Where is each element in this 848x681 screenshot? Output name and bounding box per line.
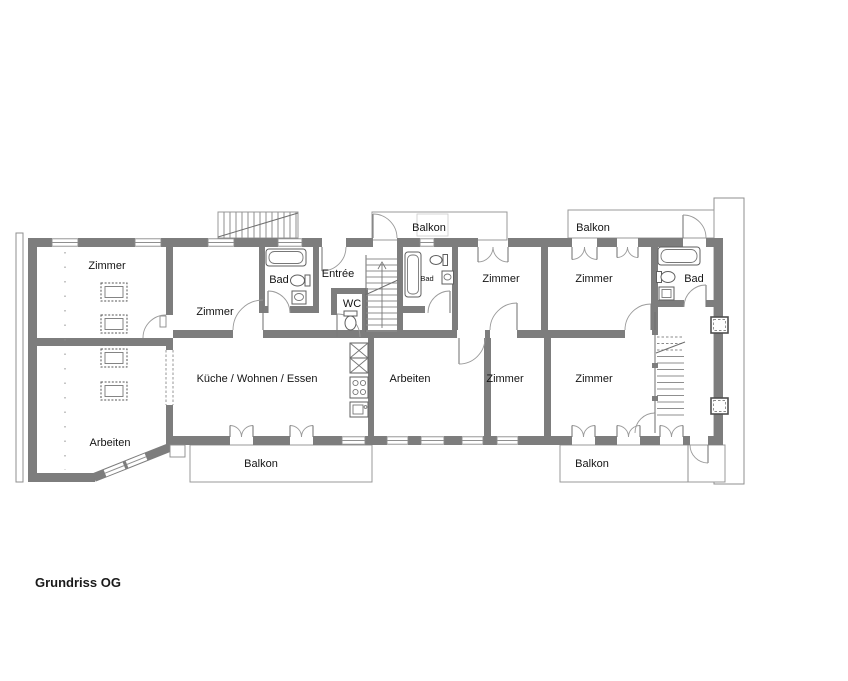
exterior-stair [218, 212, 298, 238]
toilet-icon [657, 272, 676, 283]
room-label-bad-e: Bad [684, 273, 704, 285]
bathtub-icon [266, 249, 306, 266]
room-label-bad-w: Bad [269, 274, 289, 286]
room-label-arbeiten-m: Arbeiten [390, 373, 431, 385]
room-label-zimmer-n2: Zimmer [575, 273, 613, 285]
sink-icon [350, 402, 368, 417]
plan-title: Grundriss OG [35, 575, 121, 590]
sink-icon [292, 291, 306, 304]
kitchen-cabinet-icon [350, 343, 368, 373]
balcony-label-bottom-right: Balkon [575, 458, 609, 470]
room-label-zimmer-nw: Zimmer [88, 260, 126, 272]
room-label-zimmer-w: Zimmer [196, 306, 234, 318]
bed-icon [101, 315, 127, 333]
toilet-icon [344, 311, 357, 330]
bed-icon [101, 382, 127, 400]
floor-plan-page: Zimmer Zimmer Bad Entrée WC Bad Zimmer Z… [0, 0, 848, 681]
room-label-arbeiten-sw: Arbeiten [90, 437, 131, 449]
doors [143, 214, 708, 463]
sink-icon [659, 287, 674, 300]
room-label-zimmer-s1: Zimmer [486, 373, 524, 385]
balcony-label-top-left: Balkon [412, 222, 446, 234]
room-label-entree: Entrée [322, 268, 354, 280]
bed-icon [101, 349, 127, 367]
balcony-bottom-left-outline [190, 445, 372, 482]
bathtub-icon [658, 247, 700, 265]
balcony-label-bottom-left: Balkon [244, 458, 278, 470]
toilet-icon [291, 275, 311, 286]
main-staircase [365, 255, 398, 332]
balcony-label-top-right: Balkon [576, 222, 610, 234]
floor-plan-drawing: Zimmer Zimmer Bad Entrée WC Bad Zimmer Z… [0, 0, 848, 681]
room-label-wc: WC [343, 298, 361, 310]
room-label-kueche: Küche / Wohnen / Essen [197, 373, 318, 385]
chimney-icon [711, 317, 728, 333]
room-label-zimmer-n1: Zimmer [482, 273, 520, 285]
chimney-icon [711, 398, 728, 414]
bed-icon [101, 283, 127, 301]
sink-icon [442, 271, 454, 284]
stove-icon [350, 377, 368, 398]
toilet-icon [430, 255, 448, 266]
bathtub-icon [405, 252, 421, 297]
room-label-bad-m: Bad [420, 274, 433, 283]
room-label-zimmer-s2: Zimmer [575, 373, 613, 385]
